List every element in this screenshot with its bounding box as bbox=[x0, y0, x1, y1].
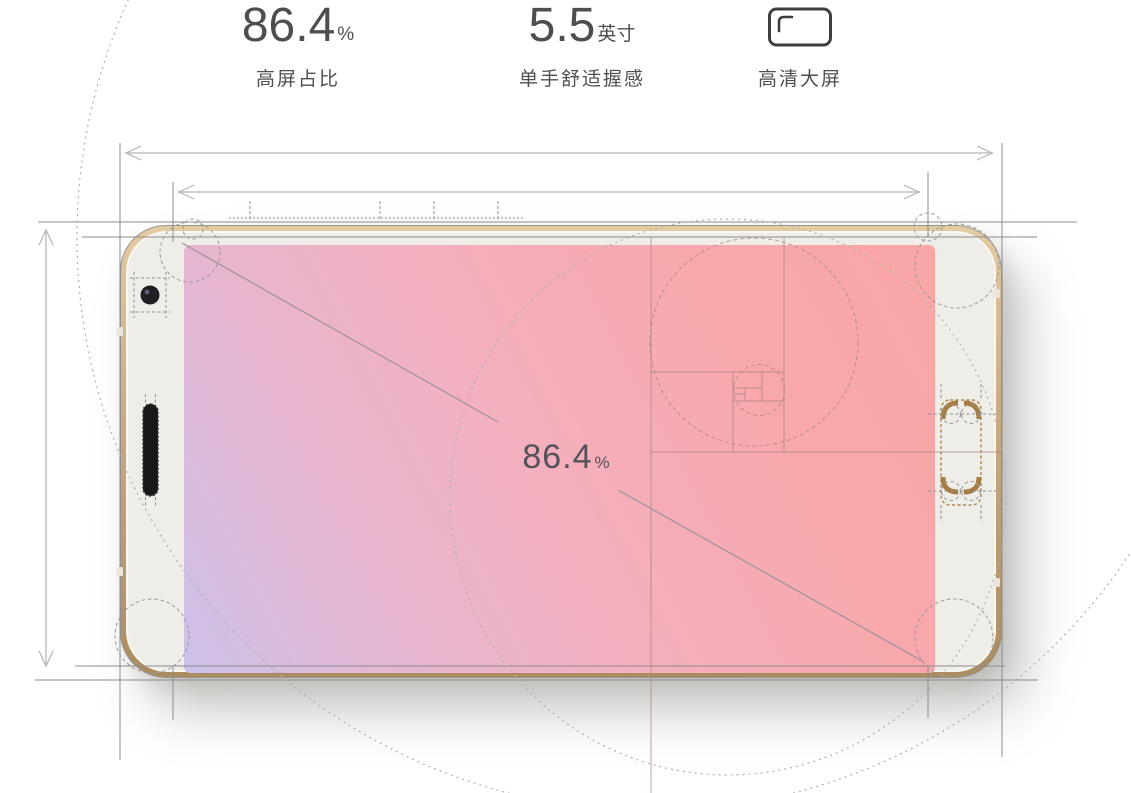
front-camera bbox=[130, 272, 170, 318]
screen-ratio-value: 86.4 bbox=[522, 440, 592, 474]
right-bezel-component bbox=[928, 384, 996, 522]
height-dimension-arrow bbox=[39, 229, 53, 667]
width-dimension-arrow bbox=[125, 146, 993, 160]
sweep-circles bbox=[77, 0, 1131, 793]
speaker-grille bbox=[143, 394, 158, 506]
screen-ratio-label: 86.4 % bbox=[522, 440, 609, 474]
blueprint-overlay bbox=[0, 0, 1131, 793]
screen-width-dimension-arrow bbox=[178, 185, 920, 199]
page: 86.4 % 高屏占比 5.5 英寸 单手舒适握感 高清大屏 bbox=[0, 0, 1131, 793]
screen-ratio-unit: % bbox=[595, 452, 610, 474]
golden-ratio-construction bbox=[650, 237, 1002, 793]
top-ruler bbox=[229, 201, 523, 219]
